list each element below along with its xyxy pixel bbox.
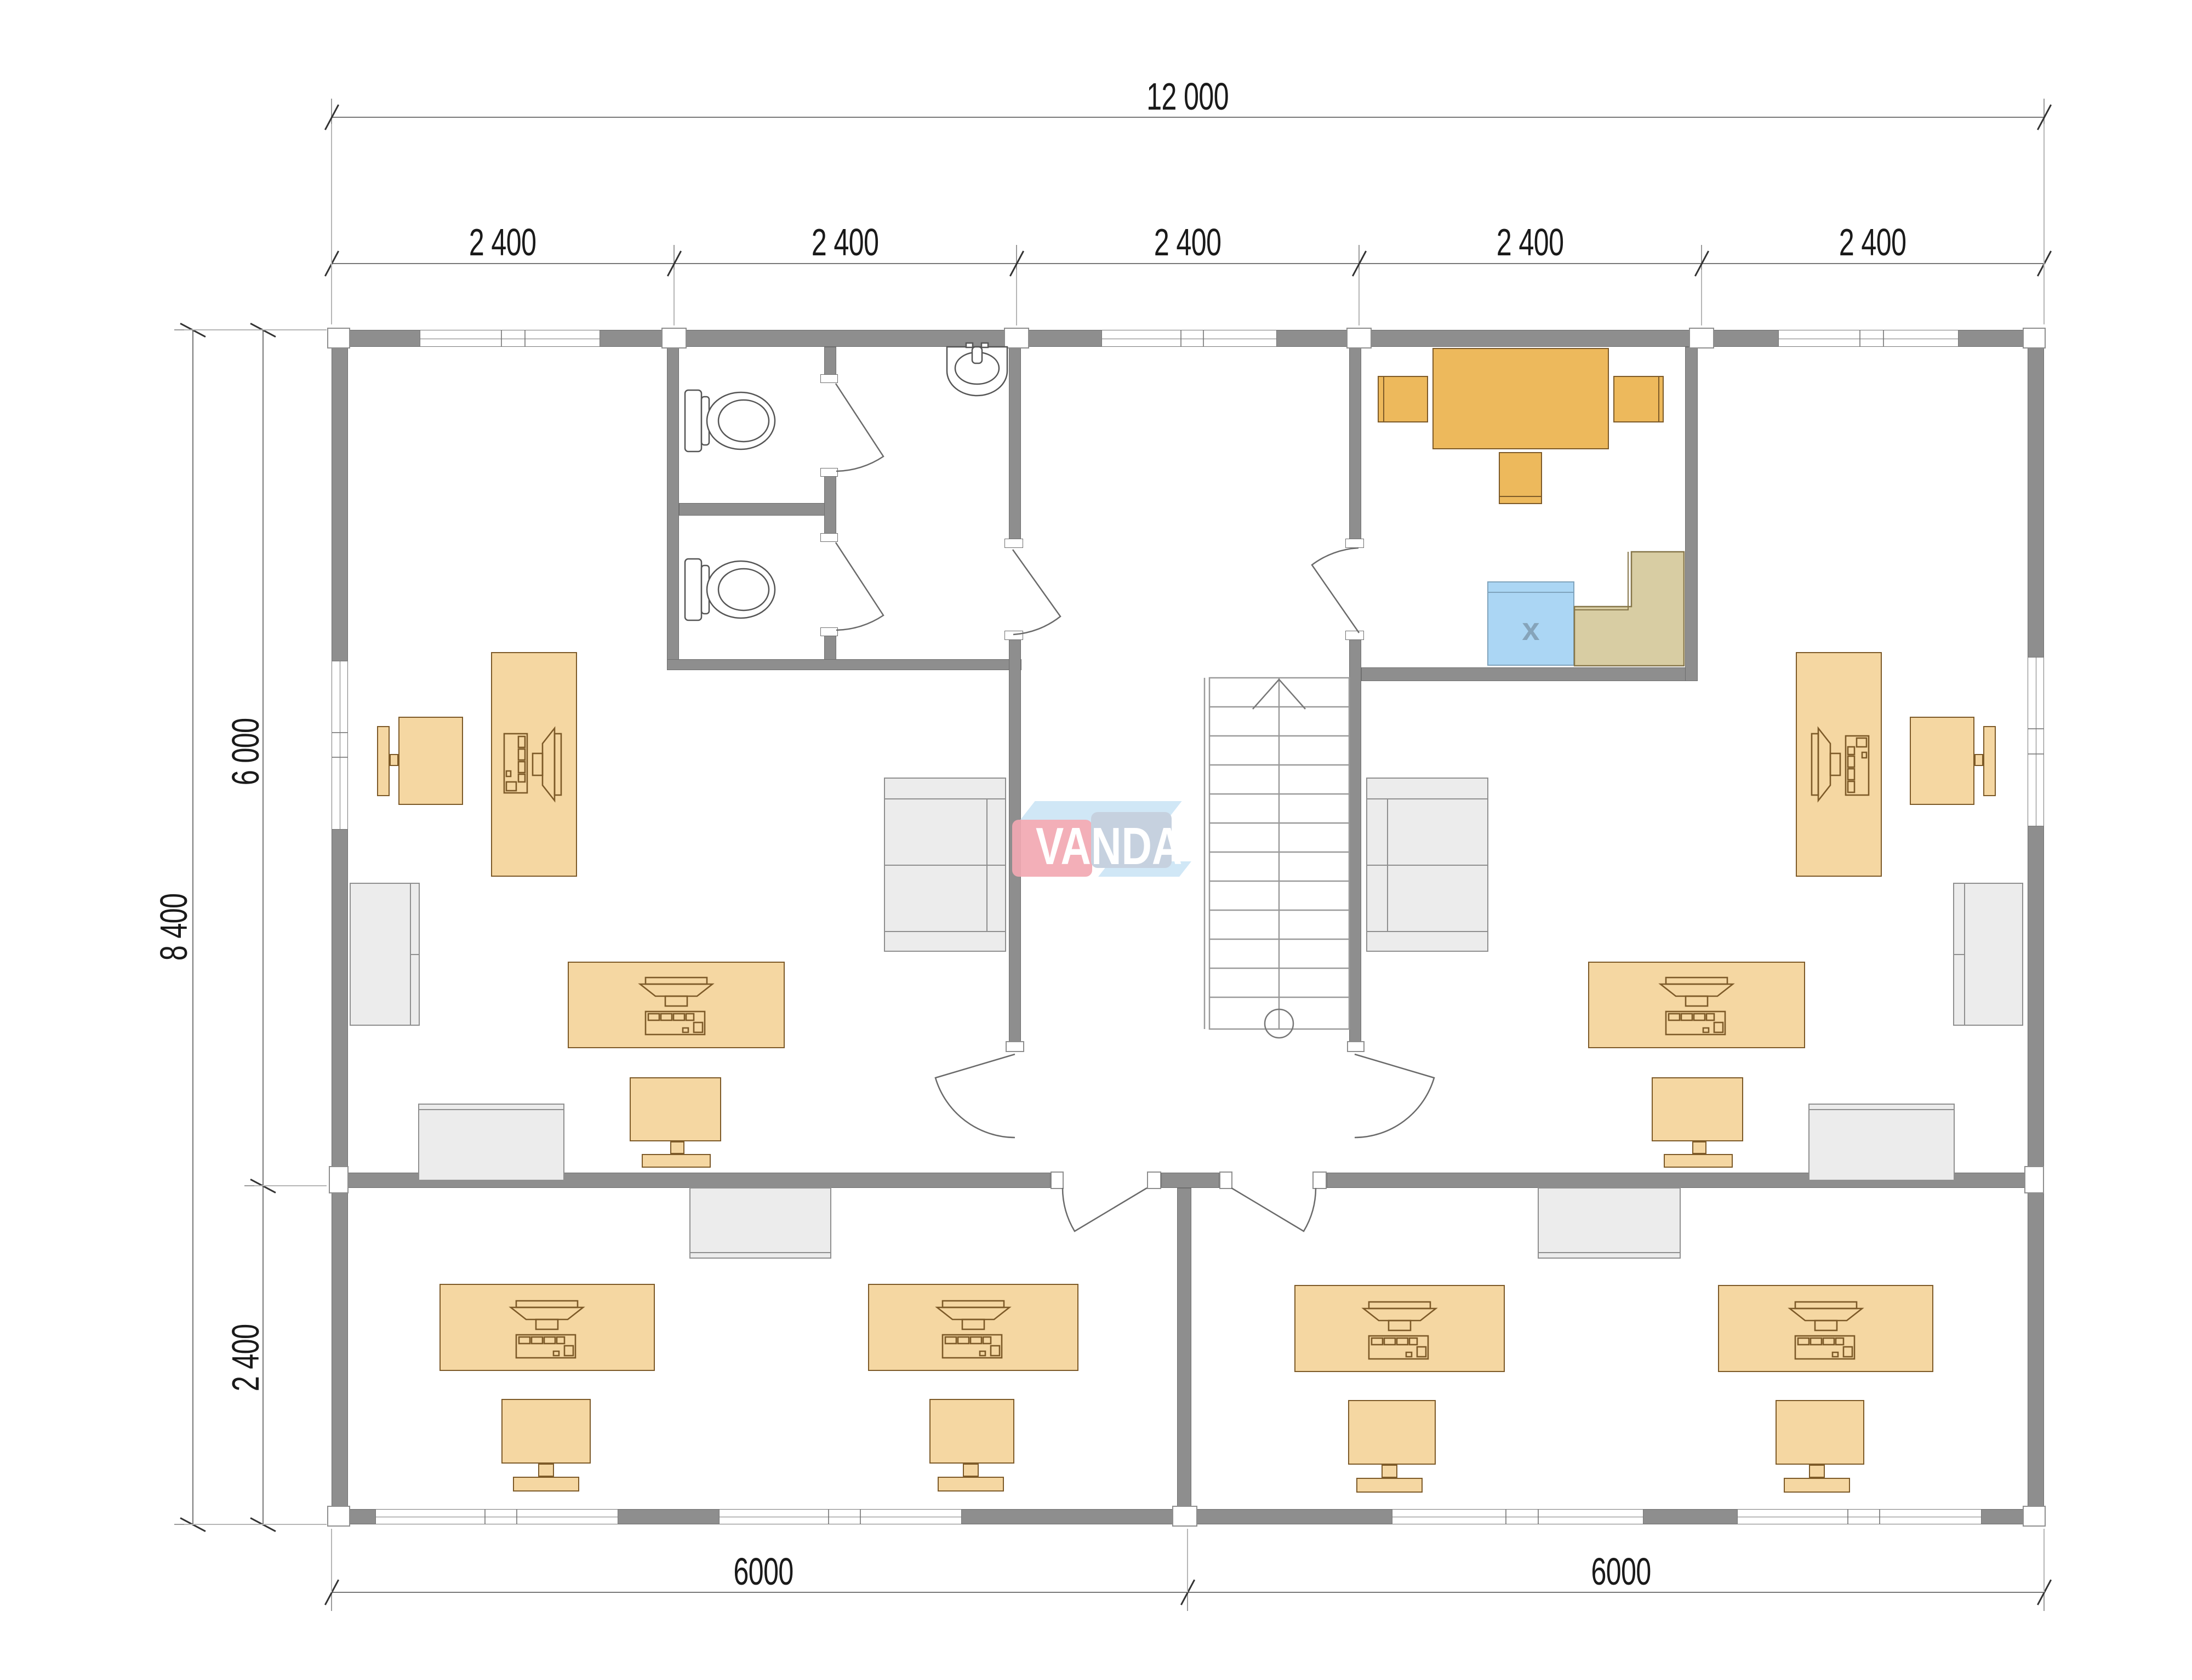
computer-icon bbox=[937, 1301, 1009, 1358]
toilet-icon bbox=[685, 559, 775, 620]
computer-icon bbox=[504, 728, 561, 801]
staircase bbox=[1205, 678, 1349, 1038]
door-washroom bbox=[1013, 550, 1060, 635]
computer-icon bbox=[511, 1301, 583, 1358]
door-wc-stall-1 bbox=[836, 384, 883, 471]
door-lobby-right bbox=[1355, 1054, 1434, 1138]
computer-icon bbox=[1660, 978, 1733, 1035]
door-lobby-left bbox=[935, 1054, 1015, 1138]
computer-icon bbox=[1363, 1302, 1436, 1359]
toilet-icon bbox=[685, 390, 775, 452]
logo-text: VANDA bbox=[1036, 816, 1163, 877]
computer-icon bbox=[640, 978, 712, 1035]
door-wc-stall-2 bbox=[836, 542, 883, 630]
computer-icon bbox=[1790, 1302, 1862, 1359]
door-room-left bbox=[1063, 1188, 1147, 1231]
vanda-watermark: VANDA bbox=[1011, 800, 1184, 879]
sink-icon bbox=[947, 343, 1007, 396]
computer-icon bbox=[1812, 728, 1869, 801]
door-kitchen bbox=[1312, 548, 1359, 633]
kitchen-counter bbox=[1574, 552, 1684, 666]
door-room-right bbox=[1231, 1188, 1316, 1231]
floor-plan: 12 000 2 400 2 400 2 400 2 400 2 400 8 4… bbox=[0, 0, 2192, 1680]
